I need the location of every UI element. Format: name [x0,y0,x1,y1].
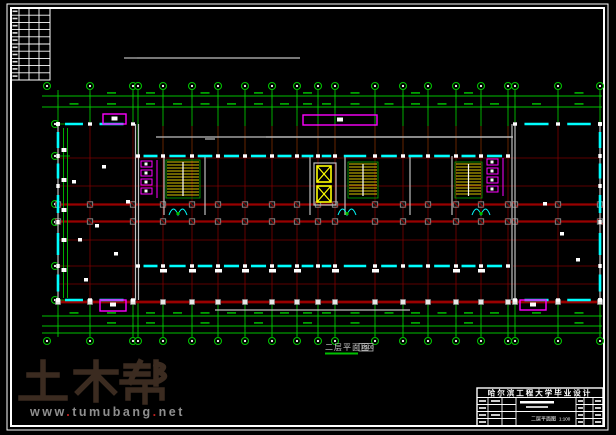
cad-sheet: 二层平面图 1:100 哈尔滨工程大学毕业设计 二层平面图 1:100 www.… [0,0,616,435]
elevator-shafts [314,163,336,205]
title-block: 哈尔滨工程大学毕业设计 二层平面图 1:100 [488,388,593,423]
structural-grid [58,126,600,302]
cad-canvas: 二层平面图 1:100 哈尔滨工程大学毕业设计 二层平面图 1:100 www.… [0,0,616,435]
title-block-drawing-name: 二层平面图 [531,417,556,423]
entrance-canopies [100,114,546,311]
title-block-title: 哈尔滨工程大学毕业设计 [488,388,593,398]
plan-title-label: 二层平面图 1:100 [325,343,374,352]
brand-char-mu [76,362,116,400]
door-arcs [169,209,490,215]
column-markers [55,202,602,305]
misc-details [62,128,581,298]
brand-char-tu [21,362,65,398]
brand-char-bang [122,362,165,402]
site-url: www.tumubang.net [29,405,185,419]
title-block-scale: 1:100 [559,417,571,422]
brand-watermark [21,362,165,402]
plan-scale-text: 1:100 [361,345,374,351]
margin-signature-table [11,8,50,80]
